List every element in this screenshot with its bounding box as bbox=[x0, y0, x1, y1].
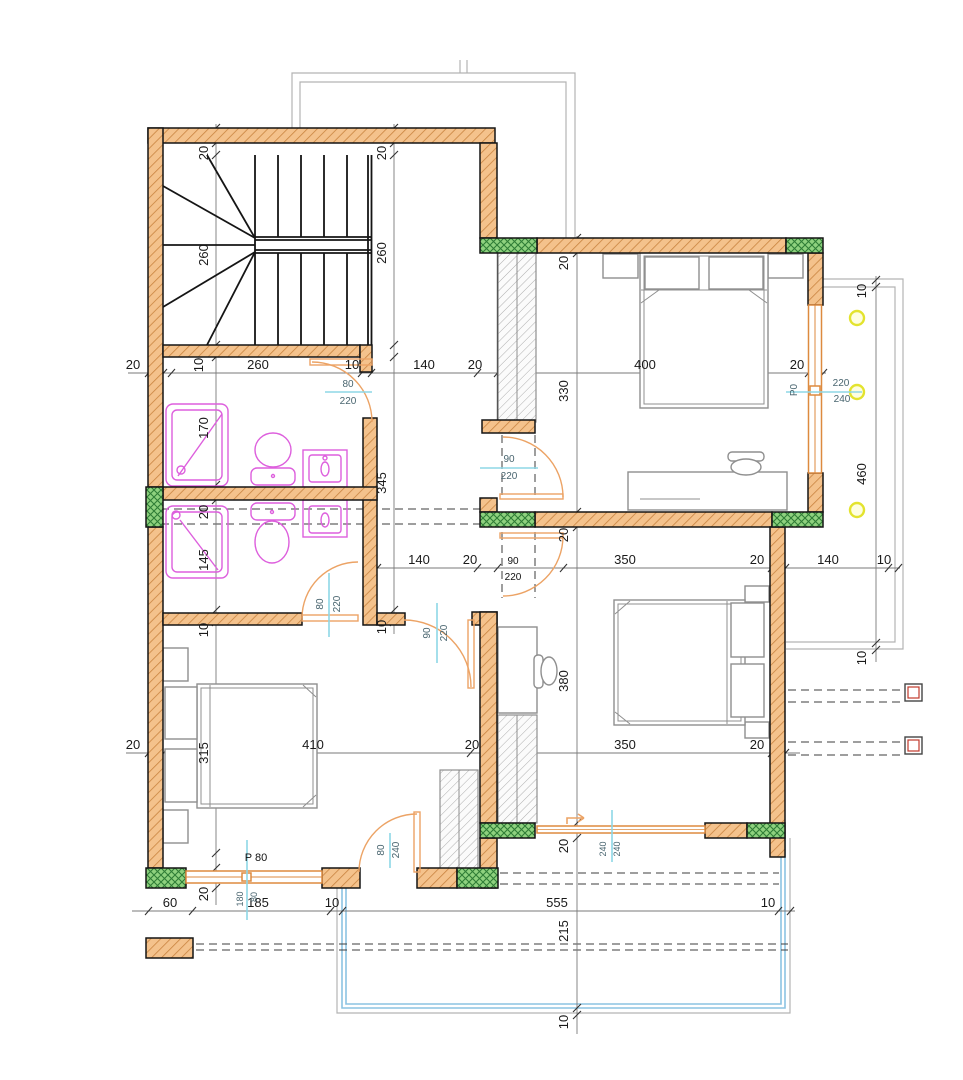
bedroom-top-furniture bbox=[498, 252, 804, 510]
dim-label: 20 bbox=[750, 737, 764, 752]
beam-end-markers bbox=[905, 684, 922, 754]
door-size-label: 240 bbox=[391, 841, 402, 858]
dim-label: 20 bbox=[374, 146, 389, 160]
balcony-outline bbox=[786, 279, 903, 649]
dim-label: 460 bbox=[854, 463, 869, 485]
dim-label: 350 bbox=[614, 737, 636, 752]
dim-label: 20 bbox=[196, 887, 211, 901]
dim-label: 20 bbox=[790, 357, 804, 372]
pillow bbox=[731, 603, 764, 657]
nightstand bbox=[163, 810, 188, 843]
nightstand bbox=[768, 254, 803, 278]
pillow bbox=[709, 257, 763, 289]
door-size-label: 220 bbox=[439, 624, 450, 641]
door-size-label: 90 bbox=[422, 627, 433, 639]
door-size-label: 80 bbox=[376, 844, 387, 856]
nightstand bbox=[745, 722, 769, 738]
pillow bbox=[645, 257, 699, 289]
door-size-label: 90 bbox=[507, 556, 519, 567]
double-bed bbox=[197, 684, 317, 808]
dim-label: 350 bbox=[614, 552, 636, 567]
dim-label: 145 bbox=[196, 549, 211, 571]
dim-label: 380 bbox=[556, 670, 571, 692]
isolated-wall-piece bbox=[146, 938, 193, 958]
shower bbox=[166, 404, 228, 486]
window-size-label: 220 bbox=[833, 378, 850, 389]
dim-label: 20 bbox=[556, 528, 571, 542]
lamp-symbols bbox=[850, 311, 864, 517]
door-size-label: 220 bbox=[505, 572, 522, 583]
dim-label: 10 bbox=[761, 895, 775, 910]
door-size-label: 220 bbox=[501, 471, 518, 482]
dim-label: 20 bbox=[465, 737, 479, 752]
dim-label: 140 bbox=[413, 357, 435, 372]
dim-label: 315 bbox=[196, 742, 211, 764]
dim-label: 330 bbox=[556, 380, 571, 402]
dim-label: 10 bbox=[374, 620, 389, 634]
door-bathroom-lower bbox=[302, 562, 358, 621]
pillow bbox=[165, 687, 197, 739]
dim-label: 10 bbox=[191, 358, 206, 372]
window-P80 bbox=[186, 871, 322, 883]
dim-label: 410 bbox=[302, 737, 324, 752]
nightstand bbox=[163, 648, 188, 681]
dim-label: 400 bbox=[634, 357, 656, 372]
window-P0 bbox=[809, 305, 822, 473]
nightstand bbox=[745, 586, 769, 602]
dim-label: 215 bbox=[556, 920, 571, 942]
dim-label: 10 bbox=[877, 552, 891, 567]
window-size-label: 240 bbox=[612, 841, 622, 856]
door-size-label: 90 bbox=[503, 454, 515, 465]
dim-label: 20 bbox=[126, 357, 140, 372]
desk bbox=[628, 472, 787, 510]
dim-label: 10 bbox=[854, 651, 869, 665]
dim-label: 10 bbox=[196, 623, 211, 637]
dim-label: 20 bbox=[196, 505, 211, 519]
bathroom-lower-fixtures bbox=[166, 500, 347, 578]
door-size-label: 220 bbox=[340, 396, 357, 407]
dim-label: 555 bbox=[546, 895, 568, 910]
window-size-label: 240 bbox=[834, 394, 851, 405]
dim-label: 20 bbox=[556, 256, 571, 270]
dim-label: 10 bbox=[854, 284, 869, 298]
dim-label: 10 bbox=[325, 895, 339, 910]
dim-label: 260 bbox=[196, 244, 211, 266]
pillow bbox=[165, 749, 197, 802]
dim-label: 10 bbox=[345, 357, 359, 372]
nightstand bbox=[603, 254, 638, 278]
bathroom-upper-fixtures bbox=[166, 404, 347, 487]
entrance-direction-arrow bbox=[567, 814, 584, 824]
window-label: P0 bbox=[789, 383, 800, 396]
staircase bbox=[163, 155, 372, 345]
window-size-label: 240 bbox=[598, 841, 608, 856]
window-size-label: 80 bbox=[249, 892, 259, 902]
pillow bbox=[731, 664, 764, 717]
dim-label: 60 bbox=[163, 895, 177, 910]
window-label: P 80 bbox=[245, 852, 267, 864]
dim-label: 20 bbox=[126, 737, 140, 752]
dim-label: 140 bbox=[817, 552, 839, 567]
dim-label: 140 bbox=[408, 552, 430, 567]
door-size-label: 80 bbox=[315, 598, 326, 610]
window-size-label: 180 bbox=[235, 891, 245, 906]
floor-plan-svg: 20 10 260 10 140 20 400 20 20 260 170 20… bbox=[0, 0, 963, 1080]
door-size-label: 220 bbox=[332, 595, 343, 612]
roof-outline bbox=[292, 60, 575, 248]
desk bbox=[498, 627, 537, 713]
dim-label: 10 bbox=[556, 1015, 571, 1029]
dim-label: 170 bbox=[196, 417, 211, 439]
window-240 bbox=[537, 826, 705, 833]
dim-label: 20 bbox=[556, 839, 571, 853]
double-bed bbox=[614, 600, 745, 725]
dim-label: 345 bbox=[374, 472, 389, 494]
dim-label: 20 bbox=[468, 357, 482, 372]
dim-label: 20 bbox=[463, 552, 477, 567]
dim-label: 260 bbox=[374, 242, 389, 264]
dim-label: 20 bbox=[196, 146, 211, 160]
bedroom-right-furniture bbox=[498, 586, 769, 823]
dim-label: 260 bbox=[247, 357, 269, 372]
toilet bbox=[255, 433, 291, 467]
door-size-label: 80 bbox=[342, 379, 354, 390]
dim-label: 20 bbox=[750, 552, 764, 567]
